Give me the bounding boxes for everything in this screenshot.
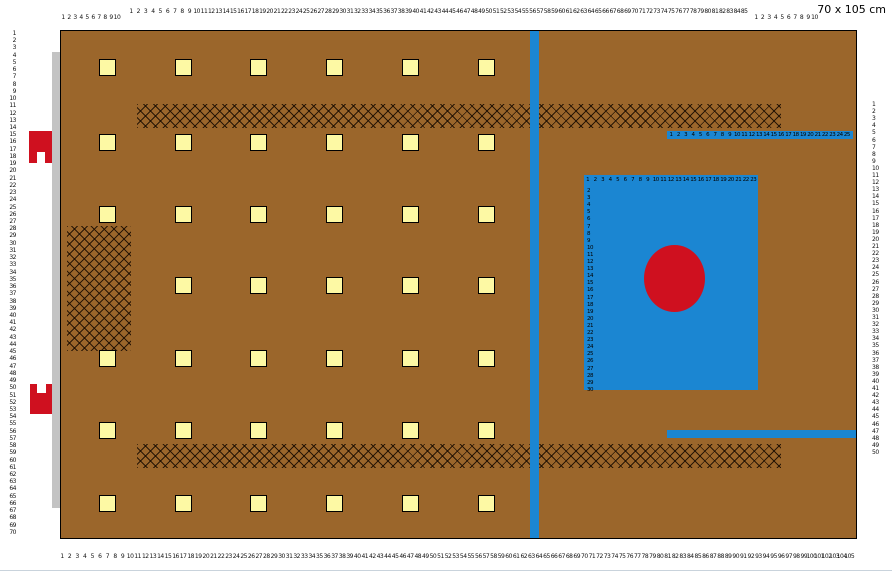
- gray-strip[interactable]: [52, 52, 60, 508]
- ruler-number: 77: [634, 554, 641, 560]
- ruler-number: 16: [237, 9, 244, 15]
- ruler-number: 9: [121, 554, 124, 560]
- fabric-square[interactable]: [478, 134, 495, 151]
- design-workspace: 70 x 105 cm 1234567891011121314151617181…: [0, 0, 892, 572]
- ruler-number: 45: [392, 554, 399, 560]
- fabric-square[interactable]: [402, 495, 419, 512]
- bar-ruler-number: 13: [756, 132, 762, 138]
- ruler-number: 39: [872, 372, 879, 378]
- ruler-number: 1: [872, 102, 875, 108]
- ruler-number: 10: [9, 96, 16, 102]
- ruler-number: 91: [740, 554, 747, 560]
- fabric-square[interactable]: [175, 277, 192, 294]
- fabric-square[interactable]: [402, 422, 419, 439]
- panel-ruler-number: 5: [587, 209, 590, 215]
- ruler-number: 83: [726, 9, 733, 15]
- panel-ruler-number: 21: [587, 323, 593, 329]
- ruler-number: 94: [763, 554, 770, 560]
- ruler-number: 38: [872, 365, 879, 371]
- ruler-number: 13: [150, 554, 157, 560]
- bar-ruler-number: 8: [721, 132, 724, 138]
- panel-ruler-number: 7: [587, 224, 590, 230]
- bar-ruler-number: 15: [771, 132, 777, 138]
- panel-ruler-number: 18: [587, 302, 593, 308]
- ruler-number: 69: [9, 523, 16, 529]
- ruler-number: 93: [755, 554, 762, 560]
- ruler-number: 22: [281, 9, 288, 15]
- ruler-number: 9: [806, 15, 809, 21]
- window-bottom-edge: [0, 570, 892, 571]
- ruler-number: 37: [872, 358, 879, 364]
- ruler-number: 20: [872, 237, 879, 243]
- ruler-number: 13: [215, 9, 222, 15]
- ruler-number: 79: [697, 9, 704, 15]
- ruler-number: 41: [872, 386, 879, 392]
- fabric-square[interactable]: [402, 206, 419, 223]
- ruler-number: 55: [522, 9, 529, 15]
- ruler-number: 32: [9, 255, 16, 261]
- ruler-number: 29: [332, 9, 339, 15]
- red-circle[interactable]: [644, 245, 705, 312]
- ruler-number: 41: [9, 320, 16, 326]
- ruler-number: 34: [369, 9, 376, 15]
- ruler-number: 49: [872, 443, 879, 449]
- ruler-number: 80: [657, 554, 664, 560]
- ruler-number: 62: [520, 554, 527, 560]
- fabric-square[interactable]: [326, 495, 343, 512]
- ruler-number: 26: [310, 9, 317, 15]
- ruler-number: 59: [498, 554, 505, 560]
- fabric-square[interactable]: [175, 422, 192, 439]
- panel-ruler-number: 12: [668, 177, 674, 183]
- ruler-number: 39: [9, 306, 16, 312]
- panel-ruler-number: 20: [587, 316, 593, 322]
- ruler-number: 32: [872, 322, 879, 328]
- ruler-number: 69: [573, 554, 580, 560]
- ruler-number: 6: [787, 15, 790, 21]
- ruler-number: 3: [144, 9, 147, 15]
- ruler-number: 48: [414, 554, 421, 560]
- ruler-number: 36: [324, 554, 331, 560]
- fabric-square[interactable]: [175, 350, 192, 367]
- ruler-number: 37: [331, 554, 338, 560]
- ruler-number: 44: [384, 554, 391, 560]
- ruler-number: 36: [383, 9, 390, 15]
- ruler-number: 27: [872, 287, 879, 293]
- ruler-number: 28: [263, 554, 270, 560]
- ruler-number: 25: [9, 205, 16, 211]
- fabric-square[interactable]: [175, 495, 192, 512]
- ruler-number: 56: [475, 554, 482, 560]
- ruler-number: 27: [255, 554, 262, 560]
- panel-ruler-number: 8: [587, 231, 590, 237]
- ruler-number: 6: [166, 9, 169, 15]
- ruler-number: 73: [653, 9, 660, 15]
- ruler-number: 49: [9, 378, 16, 384]
- ruler-number: 51: [437, 554, 444, 560]
- ruler-number: 3: [767, 15, 770, 21]
- ruler-number: 7: [106, 554, 109, 560]
- ruler-number: 67: [558, 554, 565, 560]
- ruler-number: 15: [872, 201, 879, 207]
- ruler-number: 29: [271, 554, 278, 560]
- ruler-number: 16: [872, 209, 879, 215]
- blue-panel[interactable]: 1234567891011121314151617181920212223234…: [584, 175, 758, 390]
- bar-ruler-number: 10: [734, 132, 740, 138]
- ruler-number: 19: [9, 161, 16, 167]
- fabric-square[interactable]: [402, 350, 419, 367]
- bar-ruler-number: 12: [749, 132, 755, 138]
- ruler-number: 3: [872, 116, 875, 122]
- ruler-number: 44: [9, 342, 16, 348]
- ruler-number: 46: [9, 356, 16, 362]
- panel-ruler-number: 29: [587, 380, 593, 386]
- ruler-number: 21: [872, 244, 879, 250]
- panel-ruler-number: 24: [587, 344, 593, 350]
- ruler-number: 24: [296, 9, 303, 15]
- ruler-number: 81: [664, 554, 671, 560]
- panel-ruler-number: 16: [587, 287, 593, 293]
- ruler-number: 31: [347, 9, 354, 15]
- panel-ruler-number: 17: [705, 177, 711, 183]
- ruler-number: 70: [631, 9, 638, 15]
- bar-ruler-number: 20: [807, 132, 813, 138]
- ruler-number: 16: [9, 139, 16, 145]
- fabric-square[interactable]: [250, 134, 267, 151]
- ruler-number: 18: [252, 9, 259, 15]
- ruler-number: 41: [420, 9, 427, 15]
- ruler-number: 49: [422, 554, 429, 560]
- panel-ruler-number: 14: [587, 273, 593, 279]
- fabric-square[interactable]: [175, 59, 192, 76]
- ruler-number: 36: [872, 351, 879, 357]
- fabric-square[interactable]: [250, 495, 267, 512]
- ruler-number: 19: [872, 230, 879, 236]
- ruler-number: 65: [543, 554, 550, 560]
- panel-ruler-number: 13: [675, 177, 681, 183]
- ruler-number: 34: [308, 554, 315, 560]
- ruler-number: 80: [704, 9, 711, 15]
- ruler-number: 23: [872, 258, 879, 264]
- panel-ruler-number: 4: [587, 202, 590, 208]
- fabric-square[interactable]: [326, 422, 343, 439]
- panel-ruler-number: 5: [616, 177, 619, 183]
- fabric-square[interactable]: [175, 206, 192, 223]
- ruler-number: 62: [9, 472, 16, 478]
- bar-ruler-number: 16: [778, 132, 784, 138]
- ruler-number: 18: [872, 223, 879, 229]
- ruler-number: 2: [137, 9, 140, 15]
- ruler-number: 1: [129, 9, 132, 15]
- ruler-number: 14: [223, 9, 230, 15]
- fabric-square[interactable]: [250, 422, 267, 439]
- ruler-number: 43: [872, 400, 879, 406]
- fabric-square[interactable]: [402, 59, 419, 76]
- fabric-square[interactable]: [326, 277, 343, 294]
- ruler-number: 29: [9, 233, 16, 239]
- ruler-number: 11: [201, 9, 208, 15]
- ruler-number: 10: [811, 15, 818, 21]
- ruler-number: 21: [210, 554, 217, 560]
- ruler-number: 74: [661, 9, 668, 15]
- ruler-number: 5: [13, 60, 16, 66]
- ruler-number: 10: [193, 9, 200, 15]
- ruler-number: 8: [872, 152, 875, 158]
- ruler-number: 39: [346, 554, 353, 560]
- ruler-number: 7: [13, 74, 16, 80]
- ruler-number: 12: [142, 554, 149, 560]
- ruler-number: 45: [449, 9, 456, 15]
- ruler-number: 35: [376, 9, 383, 15]
- bar-ruler-number: 5: [699, 132, 702, 138]
- ruler-number: 20: [9, 168, 16, 174]
- ruler-number: 44: [442, 9, 449, 15]
- ruler-number: 90: [732, 554, 739, 560]
- ruler-number: 61: [513, 554, 520, 560]
- ruler-number: 22: [9, 183, 16, 189]
- ruler-number: 89: [725, 554, 732, 560]
- ruler-number: 3: [73, 15, 76, 21]
- ruler-number: 5: [872, 130, 875, 136]
- ruler-number: 11: [9, 103, 16, 109]
- red-clip-bottom[interactable]: [30, 384, 52, 414]
- hatch-band-top[interactable]: [137, 104, 781, 128]
- panel-ruler-number: 11: [660, 177, 666, 183]
- fabric-square[interactable]: [478, 350, 495, 367]
- ruler-number: 30: [278, 554, 285, 560]
- bar-ruler-number: 3: [684, 132, 687, 138]
- fabric-square[interactable]: [478, 277, 495, 294]
- fabric-square[interactable]: [175, 134, 192, 151]
- panel-ruler-number: 11: [587, 252, 593, 258]
- panel-ruler-number: 25: [587, 351, 593, 357]
- ruler-number: 31: [9, 248, 16, 254]
- ruler-number: 45: [9, 349, 16, 355]
- ruler-number: 1: [61, 15, 64, 21]
- ruler-number: 43: [377, 554, 384, 560]
- ruler-number: 54: [515, 9, 522, 15]
- ruler-number: 60: [558, 9, 565, 15]
- ruler-number: 55: [9, 421, 16, 427]
- ruler-number: 60: [9, 458, 16, 464]
- fabric-square[interactable]: [250, 59, 267, 76]
- ruler-number: 35: [9, 277, 16, 283]
- bar-ruler-number: 9: [728, 132, 731, 138]
- ruler-number: 98: [793, 554, 800, 560]
- ruler-number: 58: [490, 554, 497, 560]
- blue-plain-bar[interactable]: [667, 430, 856, 438]
- ruler-number: 44: [872, 407, 879, 413]
- blue-ruler-bar[interactable]: 1234567891011121314151617181920212223242…: [667, 131, 853, 139]
- ruler-number: 51: [9, 393, 16, 399]
- ruler-number: 9: [188, 9, 191, 15]
- ruler-number: 50: [430, 554, 437, 560]
- ruler-number: 60: [505, 554, 512, 560]
- fabric-square[interactable]: [478, 495, 495, 512]
- panel-ruler-number: 27: [587, 366, 593, 372]
- ruler-number: 52: [9, 400, 16, 406]
- ruler-number: 4: [83, 554, 86, 560]
- ruler-number: 59: [551, 9, 558, 15]
- panel-ruler-number: 26: [587, 358, 593, 364]
- clip-notch: [37, 152, 45, 163]
- ruler-number: 8: [800, 15, 803, 21]
- ruler-number: 25: [872, 272, 879, 278]
- fabric-square[interactable]: [478, 59, 495, 76]
- ruler-number: 105: [844, 554, 854, 560]
- ruler-number: 7: [173, 9, 176, 15]
- ruler-number: 15: [165, 554, 172, 560]
- fabric-square[interactable]: [99, 495, 116, 512]
- ruler-number: 39: [405, 9, 412, 15]
- fabric-square[interactable]: [250, 277, 267, 294]
- ruler-number: 4: [13, 53, 16, 59]
- ruler-number: 4: [151, 9, 154, 15]
- ruler-number: 21: [274, 9, 281, 15]
- ruler-number: 48: [9, 371, 16, 377]
- panel-ruler-number: 10: [653, 177, 659, 183]
- fabric-square[interactable]: [326, 134, 343, 151]
- bar-ruler-number: 19: [800, 132, 806, 138]
- ruler-number: 63: [528, 554, 535, 560]
- panel-ruler-number: 3: [601, 177, 604, 183]
- hatch-patch-left[interactable]: [67, 226, 131, 351]
- panel-ruler-number: 18: [713, 177, 719, 183]
- fabric-square[interactable]: [326, 59, 343, 76]
- panel-ruler-number: 14: [683, 177, 689, 183]
- ruler-number: 68: [617, 9, 624, 15]
- ruler-number: 58: [9, 443, 16, 449]
- fabric-square[interactable]: [99, 422, 116, 439]
- ruler-number: 72: [596, 554, 603, 560]
- ruler-number: 8: [113, 554, 116, 560]
- ruler-number: 69: [624, 9, 631, 15]
- ruler-number: 78: [690, 9, 697, 15]
- ruler-number: 61: [9, 465, 16, 471]
- fabric-square[interactable]: [99, 59, 116, 76]
- ruler-number: 38: [339, 554, 346, 560]
- ruler-number: 2: [872, 109, 875, 115]
- ruler-number: 7: [97, 15, 100, 21]
- ruler-number: 88: [717, 554, 724, 560]
- ruler-number: 6: [98, 554, 101, 560]
- panel-ruler-number: 9: [646, 177, 649, 183]
- fabric-square[interactable]: [402, 277, 419, 294]
- ruler-number: 84: [734, 9, 741, 15]
- ruler-number: 26: [872, 280, 879, 286]
- ruler-number: 47: [463, 9, 470, 15]
- fabric-square[interactable]: [478, 206, 495, 223]
- ruler-number: 82: [672, 554, 679, 560]
- hatch-band-bottom[interactable]: [137, 444, 781, 468]
- ruler-number: 56: [9, 429, 16, 435]
- ruler-number: 57: [483, 554, 490, 560]
- fabric-square[interactable]: [402, 134, 419, 151]
- bar-ruler-number: 4: [691, 132, 694, 138]
- fabric-square[interactable]: [478, 422, 495, 439]
- blue-stripe[interactable]: [530, 31, 539, 538]
- ruler-number: 22: [872, 251, 879, 257]
- ruler-number: 64: [9, 486, 16, 492]
- ruler-number: 20: [203, 554, 210, 560]
- ruler-number: 1: [754, 15, 757, 21]
- fabric-square[interactable]: [99, 206, 116, 223]
- ruler-number: 61: [566, 9, 573, 15]
- ruler-number: 17: [9, 147, 16, 153]
- ruler-number: 12: [872, 180, 879, 186]
- panel-ruler-number: 6: [587, 216, 590, 222]
- ruler-number: 3: [13, 45, 16, 51]
- fabric-square[interactable]: [326, 350, 343, 367]
- red-clip-top[interactable]: [29, 131, 52, 163]
- ruler-number: 79: [649, 554, 656, 560]
- ruler-number: 57: [536, 9, 543, 15]
- ruler-number: 42: [427, 9, 434, 15]
- ruler-number: 13: [872, 187, 879, 193]
- ruler-number: 62: [573, 9, 580, 15]
- fabric-square[interactable]: [250, 206, 267, 223]
- ruler-number: 18: [9, 154, 16, 160]
- ruler-number: 72: [646, 9, 653, 15]
- ruler-number: 41: [361, 554, 368, 560]
- ruler-number: 2: [67, 15, 70, 21]
- size-label: 70 x 105 cm: [817, 3, 886, 16]
- fabric-square[interactable]: [250, 350, 267, 367]
- ruler-number: 48: [471, 9, 478, 15]
- ruler-number: 8: [13, 82, 16, 88]
- ruler-number: 74: [611, 554, 618, 560]
- panel-ruler-number: 12: [587, 259, 593, 265]
- bar-ruler-number: 11: [741, 132, 747, 138]
- ruler-number: 33: [361, 9, 368, 15]
- panel-ruler-number: 2: [587, 188, 590, 194]
- ruler-number: 1: [60, 554, 63, 560]
- ruler-number: 42: [872, 393, 879, 399]
- ruler-number: 67: [609, 9, 616, 15]
- ruler-number: 53: [9, 407, 16, 413]
- panel-ruler-number: 2: [594, 177, 597, 183]
- ruler-number: 40: [354, 554, 361, 560]
- bar-ruler-number: 7: [713, 132, 716, 138]
- ruler-number: 28: [325, 9, 332, 15]
- bar-ruler-number: 14: [763, 132, 769, 138]
- ruler-number: 63: [580, 9, 587, 15]
- ruler-number: 86: [702, 554, 709, 560]
- ruler-number: 51: [493, 9, 500, 15]
- fabric-square[interactable]: [326, 206, 343, 223]
- fabric-square[interactable]: [99, 350, 116, 367]
- ruler-number: 19: [195, 554, 202, 560]
- ruler-number: 37: [390, 9, 397, 15]
- ruler-number: 26: [248, 554, 255, 560]
- ruler-number: 24: [9, 197, 16, 203]
- ruler-number: 8: [180, 9, 183, 15]
- ruler-number: 68: [9, 515, 16, 521]
- ruler-number: 53: [507, 9, 514, 15]
- ruler-number: 71: [589, 554, 596, 560]
- ruler-number: 30: [872, 308, 879, 314]
- ruler-number: 34: [872, 336, 879, 342]
- ruler-number: 6: [872, 138, 875, 144]
- ruler-number: 4: [79, 15, 82, 21]
- ruler-number: 46: [399, 554, 406, 560]
- ruler-number: 37: [9, 291, 16, 297]
- design-canvas[interactable]: 1234567891011121314151617181920212223234…: [60, 30, 857, 539]
- ruler-number: 92: [748, 554, 755, 560]
- fabric-square[interactable]: [99, 134, 116, 151]
- ruler-number: 24: [233, 554, 240, 560]
- panel-ruler-number: 13: [587, 266, 593, 272]
